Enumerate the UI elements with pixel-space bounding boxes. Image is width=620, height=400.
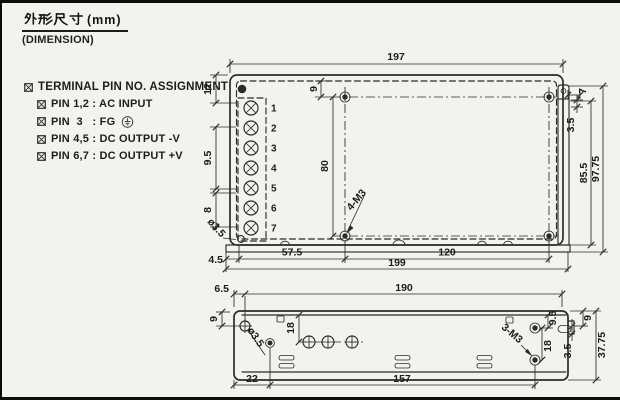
svg-text:9: 9 (208, 316, 220, 322)
screw-terminal (244, 121, 258, 135)
vent-slots (279, 356, 492, 369)
svg-text:190: 190 (395, 282, 413, 294)
dimension-drawing-page: (mm) (DIMENSION) TERMINAL PIN NO. ASSIGN… (0, 0, 620, 400)
screw-terminal (244, 101, 258, 115)
mounting-hole (340, 231, 350, 241)
dim-base-left-offset: 4.5 (208, 254, 223, 266)
side-screw-hole (530, 355, 540, 365)
dim-bottom-left-offset: 22 (231, 348, 273, 389)
svg-text:85.5: 85.5 (578, 163, 590, 184)
bottom-holes (238, 316, 540, 368)
round-vent (303, 336, 315, 348)
dim-hole-vertical-span: 80 (319, 94, 336, 239)
screw-terminal (244, 161, 258, 175)
svg-text:9.5: 9.5 (547, 311, 559, 326)
svg-text:18: 18 (285, 322, 297, 334)
pin-number: 6 (271, 204, 277, 215)
svg-text:3-M3: 3-M3 (499, 321, 525, 346)
label-bottom-hole-dia: ø3.5 (245, 325, 267, 355)
dim-width-top: 197 (227, 51, 566, 73)
dim-vent-offset: 18 (285, 312, 302, 345)
svg-text:199: 199 (388, 257, 406, 269)
dim-top-width: 190 (245, 282, 565, 307)
bottom-view: 6.5 190 9 18 ø3.5 (208, 282, 608, 389)
pin-number: 5 (271, 184, 277, 195)
svg-text:9.5: 9.5 (202, 151, 214, 166)
dim-corner-hole: ø3.5 (205, 216, 236, 240)
svg-text:7: 7 (577, 88, 589, 94)
dim-side-hole-top-offset: 9.5 (540, 311, 559, 332)
label-side-holes: 3-M3 (499, 321, 533, 356)
svg-text:80: 80 (319, 160, 331, 172)
svg-text:9: 9 (582, 315, 594, 321)
terminal-block: 1 2 3 4 5 6 7 (238, 98, 277, 241)
drawing-canvas: 1 2 3 4 5 6 7 (2, 3, 620, 400)
screw-terminal (244, 221, 258, 235)
svg-text:22: 22 (246, 373, 258, 385)
svg-text:4-M3: 4-M3 (344, 187, 369, 213)
svg-text:97.75: 97.75 (590, 156, 602, 182)
round-vent (346, 336, 358, 348)
pin-number: 1 (271, 104, 277, 115)
pin-number: 4 (271, 164, 277, 175)
screw-hole (266, 339, 275, 348)
mounting-holes (332, 87, 558, 246)
svg-text:197: 197 (387, 51, 405, 63)
screw-terminal (244, 201, 258, 215)
round-vent (322, 336, 334, 348)
svg-text:12: 12 (202, 83, 214, 95)
svg-text:3.5: 3.5 (565, 118, 577, 133)
top-view: 1 2 3 4 5 6 7 (202, 51, 608, 272)
square-vent-hole (277, 316, 284, 322)
svg-text:6.5: 6.5 (214, 283, 229, 295)
dim-pin-top-offset: 12 (202, 72, 236, 106)
pin-number: 3 (271, 144, 277, 155)
svg-text:9: 9 (308, 86, 320, 92)
enclosure-outline (226, 75, 570, 252)
dim-side-hole-span: 18 (539, 325, 554, 363)
dim-pin-pitch: 9.5 (202, 124, 236, 192)
svg-text:37.75: 37.75 (596, 332, 608, 358)
screw-terminal (244, 181, 258, 195)
pin-number: 2 (271, 124, 277, 135)
label-mounting-holes: 4-M3 (344, 187, 369, 234)
pin-number: 7 (271, 224, 277, 235)
svg-text:ø3.5: ø3.5 (205, 216, 228, 240)
screw-terminal (244, 141, 258, 155)
dim-hole-x-span: 120 (438, 247, 456, 259)
dim-hole-x-offset: 57.5 (282, 247, 303, 259)
svg-text:8: 8 (202, 207, 214, 213)
svg-text:157: 157 (393, 373, 411, 385)
svg-text:3.5: 3.5 (562, 344, 574, 359)
bottom-outline (234, 311, 574, 380)
dim-bottom-span: 157 (270, 365, 538, 389)
svg-text:ø3.5: ø3.5 (245, 325, 267, 349)
side-screw-hole (530, 323, 540, 333)
svg-text:18: 18 (542, 340, 554, 352)
